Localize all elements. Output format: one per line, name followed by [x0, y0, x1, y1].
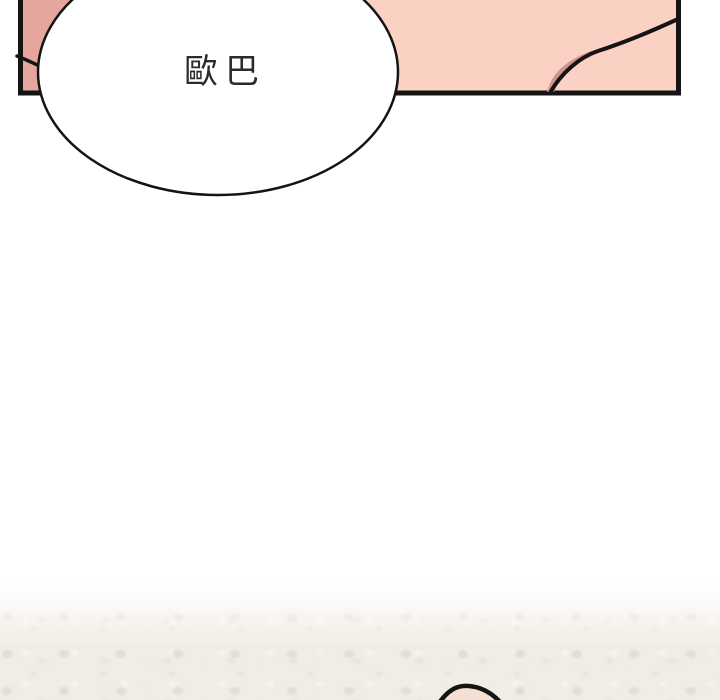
speech-bubble-text: 歐巴: [128, 46, 315, 98]
comic-panel-artwork: [0, 0, 720, 210]
head-bump: [439, 686, 501, 700]
head-bump-artwork: [0, 655, 720, 700]
webtoon-page: 歐巴: [0, 0, 720, 700]
